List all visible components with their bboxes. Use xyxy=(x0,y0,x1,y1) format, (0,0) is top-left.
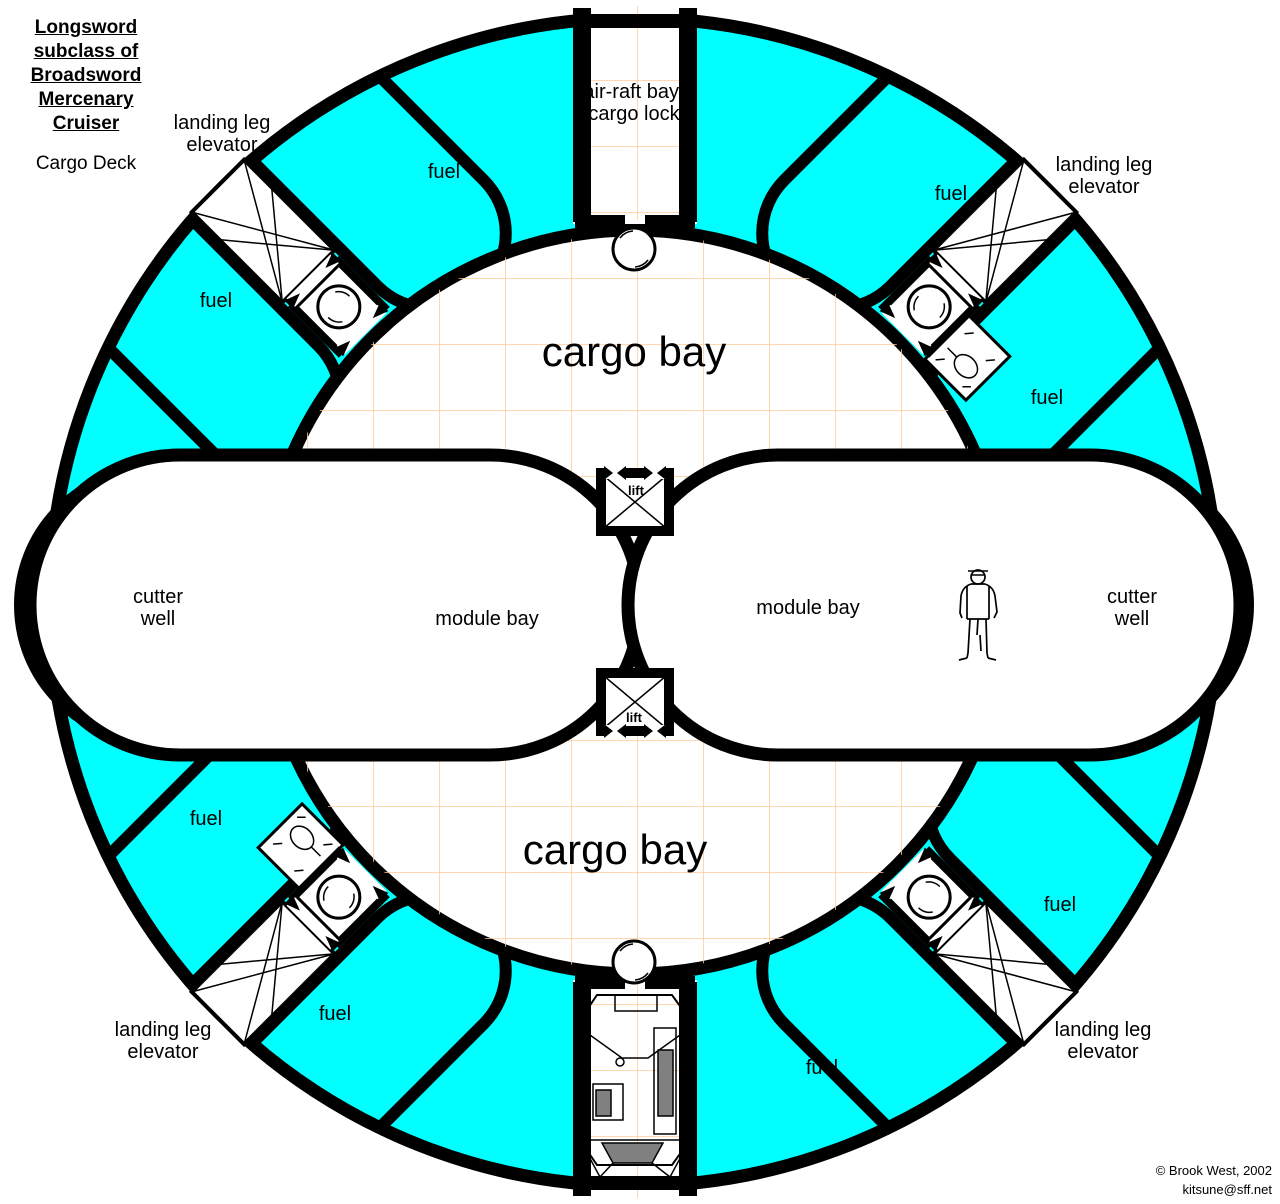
air-raft-bay-label: air-raft bay/ cargo lock xyxy=(583,81,684,125)
title-line: Broadsword xyxy=(16,64,156,88)
fuel-label: fuel xyxy=(935,183,967,205)
landing-leg-label-bl: landing leg elevator xyxy=(115,1019,212,1063)
landing-leg-label-br: landing leg elevator xyxy=(1055,1019,1152,1063)
module-bay-label-left: module bay xyxy=(435,608,538,630)
lift-bottom xyxy=(601,673,669,738)
module-bay-label-right: module bay xyxy=(756,597,859,619)
cutter-well-label-left: cutter well xyxy=(133,586,183,630)
cutter-well-label-right: cutter well xyxy=(1107,586,1157,630)
title-line: Cruiser xyxy=(16,112,156,136)
fuel-label: fuel xyxy=(190,808,222,830)
fuel-label: fuel xyxy=(319,1003,351,1025)
landing-leg-label-tl: landing leg elevator xyxy=(174,112,271,156)
title-line: subclass of xyxy=(16,40,156,64)
lift-label-top: lift xyxy=(628,484,644,498)
fuel-label: fuel xyxy=(428,161,460,183)
fuel-label: fuel xyxy=(1031,387,1063,409)
title-line: Mercenary xyxy=(16,88,156,112)
fuel-label: fuel xyxy=(200,290,232,312)
module-bay-left xyxy=(30,455,640,755)
fuel-label: fuel xyxy=(806,1057,838,1079)
lift-top xyxy=(601,466,669,531)
copyright-line2: kitsune@sff.net xyxy=(1156,1181,1272,1200)
iris-valve-bottom xyxy=(613,941,655,983)
copyright: © Brook West, 2002 kitsune@sff.net xyxy=(1156,1162,1272,1200)
deck-plan: Longsword subclass of Broadsword Mercena… xyxy=(0,0,1280,1204)
fuel-label: fuel xyxy=(1044,894,1076,916)
copyright-line1: © Brook West, 2002 xyxy=(1156,1162,1272,1181)
landing-leg-label-tr: landing leg elevator xyxy=(1056,154,1153,198)
cargo-bay-label-top: cargo bay xyxy=(542,329,726,375)
lift-label-bottom: lift xyxy=(626,711,642,725)
deck-name: Cargo Deck xyxy=(16,152,156,176)
plan-title: Longsword subclass of Broadsword Mercena… xyxy=(16,16,156,176)
cargo-bay-label-bottom: cargo bay xyxy=(523,827,707,873)
iris-valve-top xyxy=(613,228,655,270)
title-line: Longsword xyxy=(16,16,156,40)
